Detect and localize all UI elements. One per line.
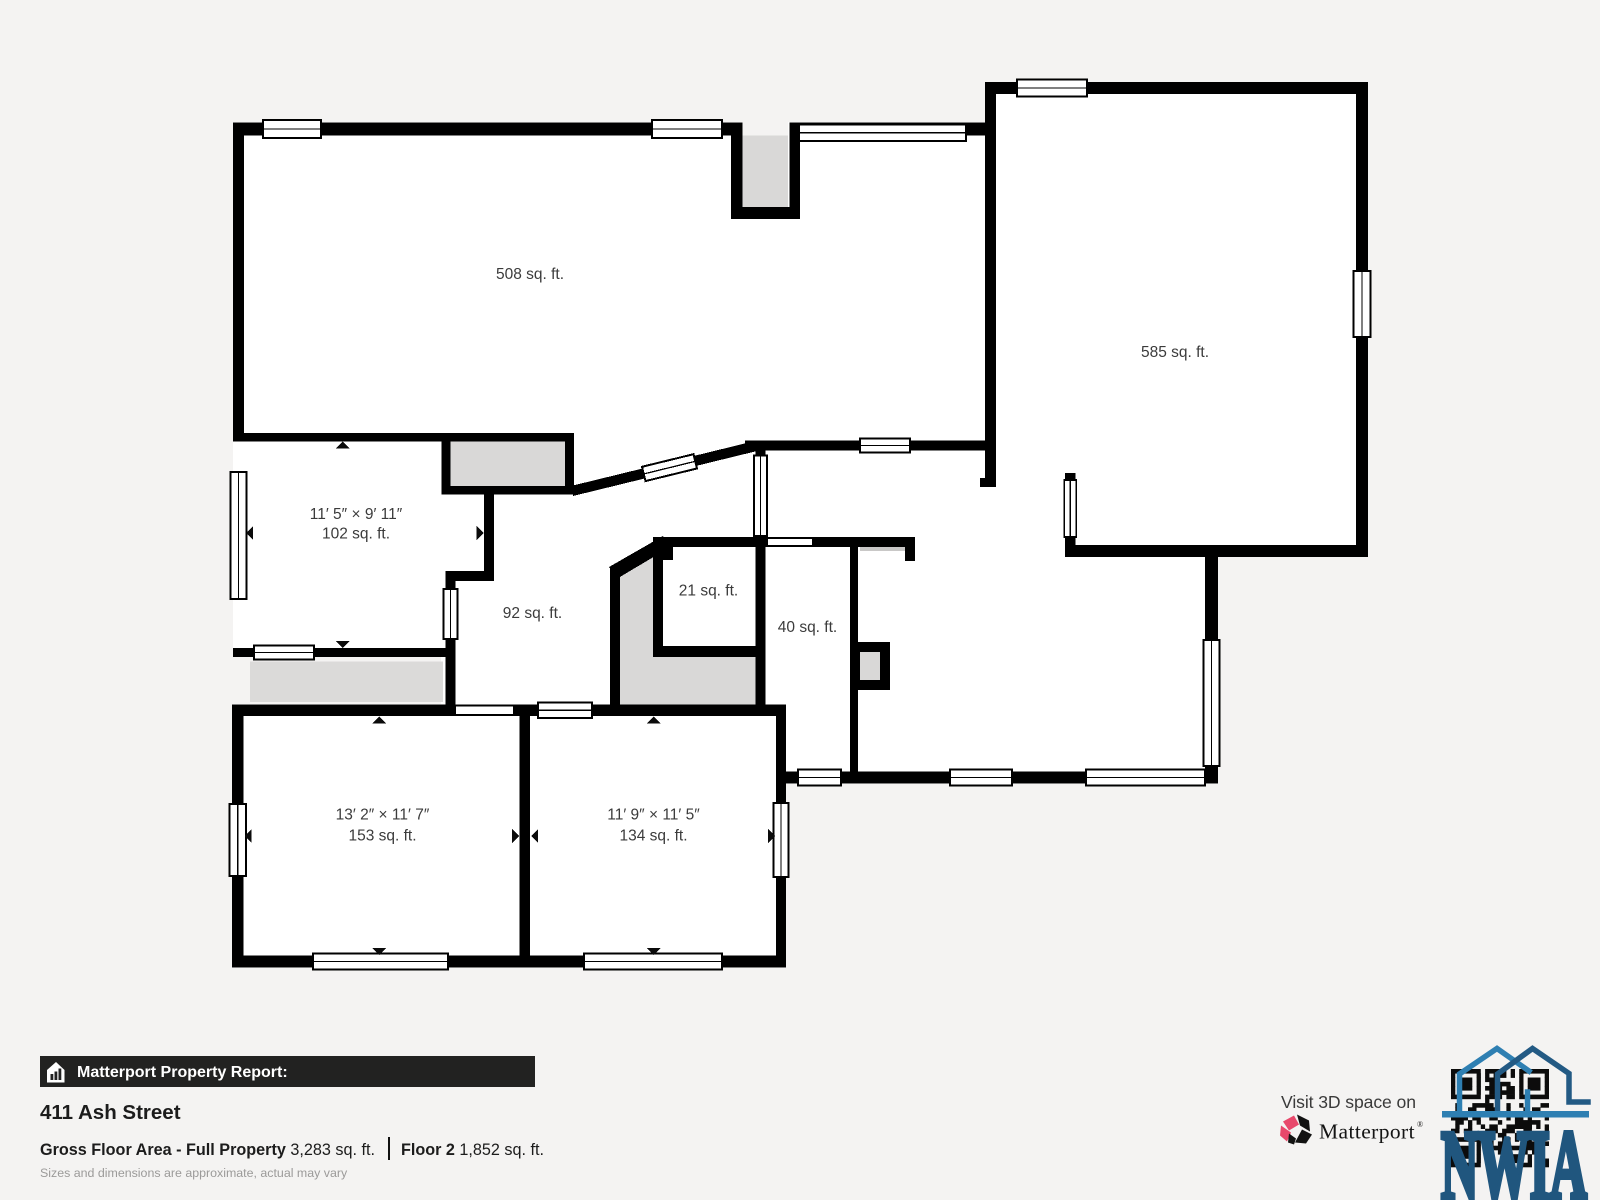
svg-text:13′ 2″ × 11′ 7″: 13′ 2″ × 11′ 7″ xyxy=(336,807,430,824)
svg-text:NWIA: NWIA xyxy=(1441,1110,1587,1200)
svg-text:®: ® xyxy=(1417,1120,1423,1129)
svg-text:21 sq. ft.: 21 sq. ft. xyxy=(679,583,738,600)
svg-text:508 sq. ft.: 508 sq. ft. xyxy=(496,266,564,283)
svg-text:153 sq. ft.: 153 sq. ft. xyxy=(348,828,416,845)
svg-text:102 sq. ft.: 102 sq. ft. xyxy=(322,526,390,543)
svg-text:92 sq. ft.: 92 sq. ft. xyxy=(503,605,562,622)
svg-text:585 sq. ft.: 585 sq. ft. xyxy=(1141,344,1209,361)
svg-text:Matterport: Matterport xyxy=(1319,1120,1415,1144)
svg-text:134 sq. ft.: 134 sq. ft. xyxy=(619,828,687,845)
svg-text:11′ 5″ × 9′ 11″: 11′ 5″ × 9′ 11″ xyxy=(310,506,403,523)
svg-text:40 sq. ft.: 40 sq. ft. xyxy=(778,619,837,636)
svg-text:11′ 9″ × 11′ 5″: 11′ 9″ × 11′ 5″ xyxy=(607,807,700,824)
